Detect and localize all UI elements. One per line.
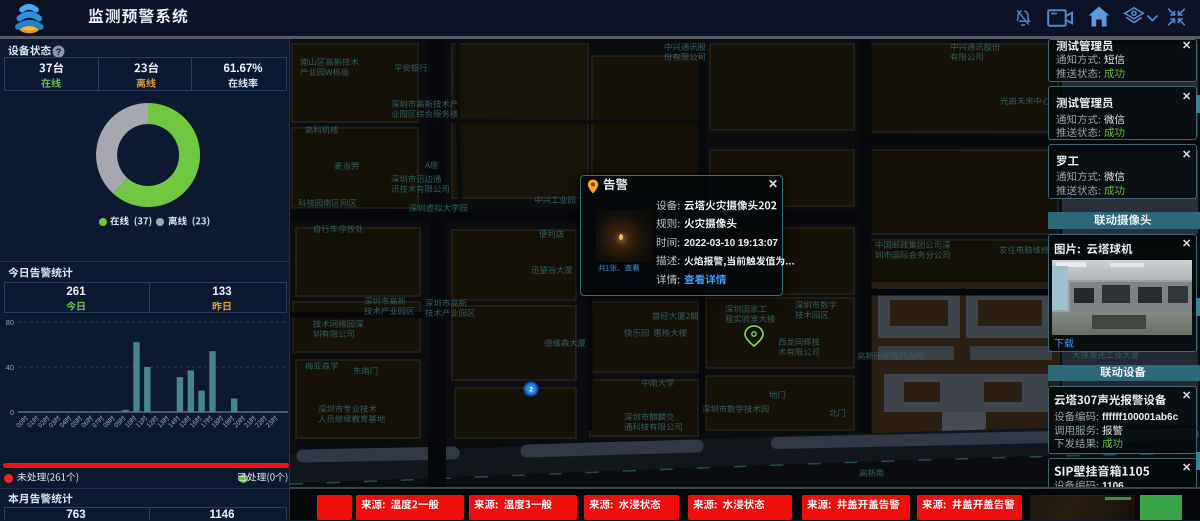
svg-text:2: 2 [529,387,533,394]
